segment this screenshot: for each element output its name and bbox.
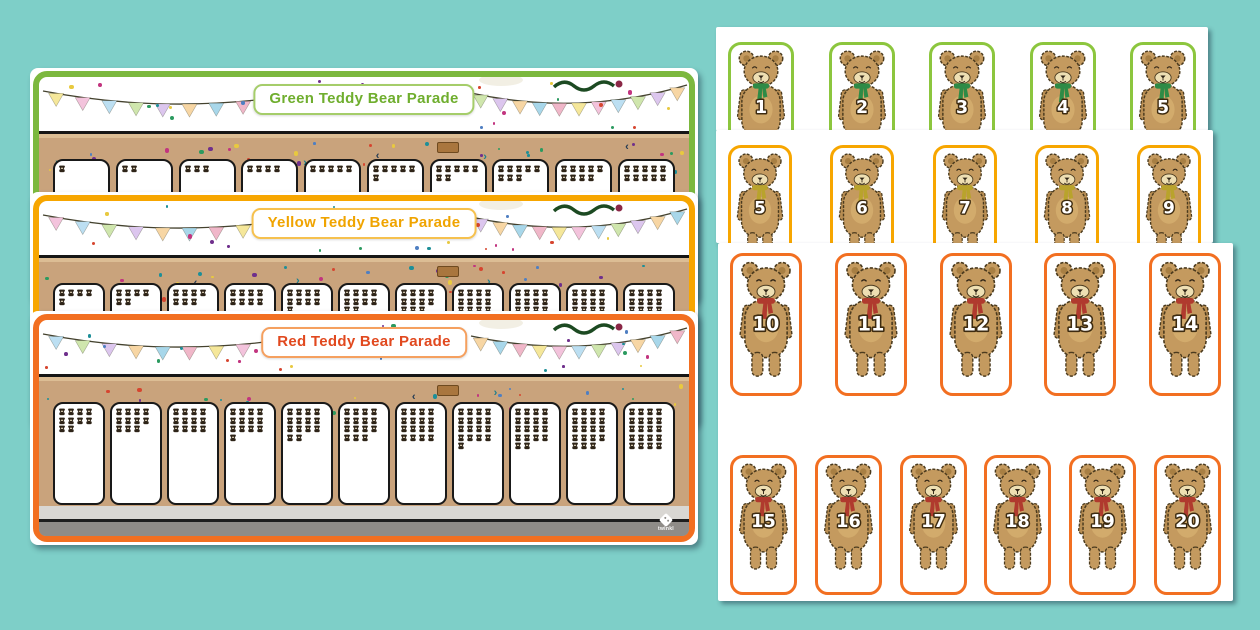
teddy-number-card-4: 4 xyxy=(1030,42,1096,131)
mini-teddy-icon xyxy=(628,434,636,442)
confetti-dot xyxy=(211,276,214,279)
confetti-dot xyxy=(502,271,505,274)
confetti-dot xyxy=(680,151,684,155)
confetti-dot xyxy=(622,343,624,345)
mini-teddy-icon xyxy=(560,165,568,173)
confetti-dot xyxy=(527,154,530,157)
teddy-bear-illustration: 2 xyxy=(833,48,891,131)
mat-title: Green Teddy Bear Parade xyxy=(269,90,458,107)
mini-teddy-icon xyxy=(199,417,207,425)
road-sign xyxy=(437,385,459,396)
mini-teddy-icon xyxy=(466,425,474,433)
mini-teddy-icon xyxy=(190,408,198,416)
mini-teddy-icon xyxy=(623,174,631,182)
mini-teddy-icon xyxy=(133,425,141,433)
mini-teddy-icon xyxy=(409,408,417,416)
mini-teddy-icon xyxy=(181,425,189,433)
teddy-number-card-16: 16 xyxy=(815,455,882,595)
mini-teddy-icon xyxy=(457,425,465,433)
confetti-dot xyxy=(228,148,231,151)
mini-teddy-icon xyxy=(172,298,180,306)
mini-teddy-icon xyxy=(58,417,66,425)
teddy-bear-illustration: 7 xyxy=(937,151,993,243)
card-row: 151617181920 xyxy=(730,455,1221,595)
bear-number: 9 xyxy=(1163,198,1175,218)
mini-teddy-icon xyxy=(514,434,522,442)
mini-teddy-icon xyxy=(523,289,531,297)
confetti-dot xyxy=(64,352,68,356)
mini-teddy-icon xyxy=(115,408,123,416)
teddy-bear-illustration: 4 xyxy=(1034,48,1092,131)
parade-mat-red: ›‹›‹›‹ Red Teddy Bear Parade twinkl xyxy=(30,311,698,545)
mini-teddy-icon xyxy=(497,174,505,182)
mini-teddy-icon xyxy=(409,425,417,433)
mini-teddy-icon xyxy=(589,417,597,425)
confetti-dot xyxy=(241,101,245,105)
teddy-bear-illustration: 18 xyxy=(988,461,1047,570)
confetti-dot xyxy=(427,247,430,250)
mini-teddy-icon xyxy=(541,417,549,425)
mini-teddy-icon xyxy=(229,408,237,416)
mini-teddy-icon xyxy=(598,289,606,297)
mini-teddy-icon xyxy=(514,417,522,425)
mini-teddy-icon xyxy=(466,408,474,416)
mini-teddy-icon xyxy=(541,434,549,442)
mini-teddy-icon xyxy=(400,289,408,297)
confetti-dot xyxy=(45,277,49,281)
mini-teddy-icon xyxy=(313,417,321,425)
mini-teddy-icon xyxy=(304,408,312,416)
mini-teddy-icon xyxy=(596,165,604,173)
mini-teddy-icon xyxy=(372,165,380,173)
confetti-dot xyxy=(88,334,91,337)
teddy-bear-illustration: 20 xyxy=(1158,461,1217,570)
mini-teddy-icon xyxy=(124,408,132,416)
mini-teddy-icon xyxy=(67,289,75,297)
mini-teddy-icon xyxy=(628,289,636,297)
mini-teddy-icon xyxy=(400,408,408,416)
mini-teddy-icon xyxy=(343,289,351,297)
mini-teddy-icon xyxy=(532,417,540,425)
mini-teddy-icon xyxy=(115,417,123,425)
mini-teddy-icon xyxy=(352,408,360,416)
mini-teddy-icon xyxy=(484,434,492,442)
bear-number: 16 xyxy=(836,512,861,532)
mini-teddy-icon xyxy=(571,442,579,450)
mini-teddy-icon xyxy=(637,434,645,442)
mini-teddy-icon xyxy=(650,174,658,182)
mini-teddy-icon xyxy=(514,442,522,450)
mini-teddy-icon xyxy=(418,417,426,425)
confetti-dot xyxy=(478,86,481,89)
bear-number: 19 xyxy=(1090,512,1115,532)
teddy-bear-illustration: 10 xyxy=(734,259,798,377)
teddy-number-card-11: 11 xyxy=(835,253,907,396)
confetti-dot xyxy=(238,360,240,362)
mini-teddy-icon xyxy=(181,289,189,297)
confetti-dot xyxy=(562,365,565,368)
mini-teddy-icon xyxy=(475,425,483,433)
mini-teddy-icon xyxy=(313,289,321,297)
mini-teddy-icon xyxy=(124,298,132,306)
mini-teddy-icon xyxy=(646,408,654,416)
confetti-dot xyxy=(625,330,629,334)
mini-teddy-icon xyxy=(238,298,246,306)
mini-teddy-icon xyxy=(598,417,606,425)
mini-teddy-icon xyxy=(409,298,417,306)
mini-teddy-icon xyxy=(523,442,531,450)
confetti-dot xyxy=(670,152,673,155)
mini-teddy-icon xyxy=(466,417,474,425)
teddy-bear-illustration: 9 xyxy=(1141,151,1197,243)
mini-teddy-icon xyxy=(67,408,75,416)
confetti-dot xyxy=(105,212,108,215)
mini-teddy-icon xyxy=(523,425,531,433)
mini-teddy-icon xyxy=(514,289,522,297)
mini-teddy-icon xyxy=(390,165,398,173)
confetti-dot xyxy=(319,277,323,281)
mini-teddy-icon xyxy=(256,289,264,297)
bear-number: 2 xyxy=(855,98,867,118)
mini-teddy-icon xyxy=(193,165,201,173)
mini-teddy-icon xyxy=(580,298,588,306)
mini-teddy-icon xyxy=(655,425,663,433)
mini-teddy-icon xyxy=(637,442,645,450)
confetti-dot xyxy=(252,273,256,277)
mini-teddy-icon xyxy=(523,434,531,442)
road-chevron: ‹ xyxy=(625,142,629,153)
mini-teddy-icon xyxy=(541,408,549,416)
counting-stand-16 xyxy=(395,402,447,505)
confetti-dot xyxy=(557,98,559,100)
confetti-dot xyxy=(226,359,229,362)
bear-number: 5 xyxy=(1157,98,1169,118)
mini-teddy-icon xyxy=(466,298,474,306)
bear-number: 20 xyxy=(1175,512,1200,532)
mini-teddy-icon xyxy=(580,442,588,450)
mini-teddy-icon xyxy=(457,434,465,442)
confetti-dot xyxy=(550,82,553,85)
mini-teddy-icon xyxy=(399,165,407,173)
mini-teddy-icon xyxy=(247,425,255,433)
mini-teddy-icon xyxy=(598,434,606,442)
teddy-bear-illustration: 13 xyxy=(1048,259,1112,377)
mini-teddy-icon xyxy=(115,298,123,306)
mini-teddy-icon xyxy=(408,165,416,173)
brand-logo: twinkl xyxy=(652,515,680,532)
mini-teddy-icon xyxy=(115,425,123,433)
mini-teddy-icon xyxy=(541,425,549,433)
mini-teddy-icon xyxy=(130,165,138,173)
teddy-number-card-1: 1 xyxy=(728,42,794,131)
mini-teddy-icon xyxy=(409,289,417,297)
confetti-dot xyxy=(473,265,475,267)
mini-teddy-icon xyxy=(58,425,66,433)
mini-teddy-icon xyxy=(304,425,312,433)
mini-teddy-icon xyxy=(589,289,597,297)
mini-teddy-icon xyxy=(295,289,303,297)
confetti-dot xyxy=(120,279,124,283)
counting-stand-14 xyxy=(281,402,333,505)
mini-teddy-icon xyxy=(238,425,246,433)
mini-teddy-icon xyxy=(418,289,426,297)
mini-teddy-icon xyxy=(318,165,326,173)
mini-teddy-icon xyxy=(313,408,321,416)
mini-teddy-icon xyxy=(256,425,264,433)
mini-teddy-icon xyxy=(345,165,353,173)
teddy-bear-illustration: 12 xyxy=(944,259,1008,377)
confetti-dot xyxy=(667,107,670,110)
mini-teddy-icon xyxy=(571,434,579,442)
mini-teddy-icon xyxy=(541,289,549,297)
mini-teddy-icon xyxy=(637,417,645,425)
mini-teddy-icon xyxy=(309,165,317,173)
mini-teddy-icon xyxy=(637,298,645,306)
mini-teddy-icon xyxy=(571,298,579,306)
mini-teddy-icon xyxy=(418,298,426,306)
mini-teddy-icon xyxy=(190,298,198,306)
mini-teddy-icon xyxy=(370,289,378,297)
mini-teddy-icon xyxy=(361,425,369,433)
mini-teddy-icon xyxy=(466,434,474,442)
mini-teddy-icon xyxy=(471,165,479,173)
mini-teddy-icon xyxy=(646,425,654,433)
mini-teddy-icon xyxy=(580,289,588,297)
mini-teddy-icon xyxy=(343,425,351,433)
card-row: 56789 xyxy=(728,145,1201,243)
mini-teddy-icon xyxy=(124,425,132,433)
mini-teddy-icon xyxy=(247,408,255,416)
mini-teddy-icon xyxy=(295,434,303,442)
confetti-dot xyxy=(165,148,169,152)
counting-stand-11 xyxy=(110,402,162,505)
counting-stand-18 xyxy=(509,402,561,505)
mini-teddy-icon xyxy=(85,408,93,416)
mini-teddy-icon xyxy=(247,298,255,306)
mini-teddy-icon xyxy=(637,408,645,416)
bear-number: 10 xyxy=(753,313,780,336)
mini-teddy-icon xyxy=(514,408,522,416)
mini-teddy-icon xyxy=(304,417,312,425)
mini-teddy-icon xyxy=(578,165,586,173)
counting-stands-row xyxy=(53,402,675,505)
mini-teddy-icon xyxy=(457,408,465,416)
confetti-dot xyxy=(567,339,570,342)
card-page-green-1-5: 12345 xyxy=(716,27,1208,131)
mini-teddy-icon xyxy=(646,442,654,450)
confetti-dot xyxy=(159,273,162,276)
teddy-bear-illustration: 5 xyxy=(1134,48,1192,131)
mini-teddy-icon xyxy=(580,408,588,416)
mini-teddy-icon xyxy=(533,165,541,173)
card-row: 12345 xyxy=(728,42,1196,131)
mini-teddy-icon xyxy=(142,408,150,416)
mat-title-banner: Green Teddy Bear Parade xyxy=(253,84,474,115)
teddy-number-card-3: 3 xyxy=(929,42,995,131)
confetti-dot xyxy=(623,351,627,355)
mini-teddy-icon xyxy=(532,289,540,297)
mini-teddy-icon xyxy=(295,425,303,433)
confetti-dot xyxy=(509,388,511,390)
road-sign xyxy=(437,142,459,153)
counting-stand-15 xyxy=(338,402,390,505)
confetti-dot xyxy=(536,266,539,269)
mini-teddy-icon xyxy=(343,408,351,416)
mini-teddy-icon xyxy=(628,408,636,416)
mat-title-banner: Yellow Teddy Bear Parade xyxy=(252,208,477,239)
teddy-bear-illustration: 5 xyxy=(732,151,788,243)
mini-teddy-icon xyxy=(313,298,321,306)
mini-teddy-icon xyxy=(637,289,645,297)
mini-teddy-icon xyxy=(515,165,523,173)
mini-teddy-icon xyxy=(264,165,272,173)
confetti-dot xyxy=(47,398,49,400)
mini-teddy-icon xyxy=(343,434,351,442)
counting-stand-10 xyxy=(53,402,105,505)
teddy-bear-illustration: 19 xyxy=(1073,461,1132,570)
confetti-dot xyxy=(284,266,287,269)
mini-teddy-icon xyxy=(506,174,514,182)
teddy-number-card-6: 6 xyxy=(830,145,894,243)
mat-title-banner: Red Teddy Bear Parade xyxy=(261,327,467,358)
confetti-dot xyxy=(646,355,650,359)
confetti-dot xyxy=(227,245,229,247)
confetti-dot xyxy=(234,144,239,149)
mini-teddy-icon xyxy=(418,425,426,433)
mini-teddy-icon xyxy=(435,165,443,173)
mat-title: Yellow Teddy Bear Parade xyxy=(268,214,461,231)
mini-teddy-icon xyxy=(336,165,344,173)
mini-teddy-icon xyxy=(181,408,189,416)
confetti-dot xyxy=(147,105,151,109)
mini-teddy-icon xyxy=(361,434,369,442)
mini-teddy-icon xyxy=(571,408,579,416)
bear-number: 7 xyxy=(959,198,971,218)
mini-teddy-icon xyxy=(256,417,264,425)
pavement-strip xyxy=(39,506,689,536)
mini-teddy-icon xyxy=(229,289,237,297)
mini-teddy-icon xyxy=(524,165,532,173)
confetti-dot xyxy=(502,111,506,115)
mini-teddy-icon xyxy=(580,425,588,433)
bear-number: 13 xyxy=(1067,313,1094,336)
bear-number: 12 xyxy=(962,313,989,336)
confetti-dot xyxy=(90,153,92,155)
mini-teddy-icon xyxy=(418,434,426,442)
mini-teddy-icon xyxy=(560,174,568,182)
mini-teddy-icon xyxy=(506,165,514,173)
confetti-dot xyxy=(632,143,635,146)
bear-number: 5 xyxy=(754,198,766,218)
bear-number: 3 xyxy=(956,98,968,118)
confetti-dot xyxy=(294,151,298,155)
mini-teddy-icon xyxy=(628,298,636,306)
mini-teddy-icon xyxy=(655,442,663,450)
mini-teddy-icon xyxy=(569,174,577,182)
bear-number: 15 xyxy=(751,512,776,532)
teddy-bear-illustration: 11 xyxy=(839,259,903,377)
mini-teddy-icon xyxy=(523,417,531,425)
teddy-bear-illustration: 6 xyxy=(834,151,890,243)
mini-teddy-icon xyxy=(623,165,631,173)
mini-teddy-icon xyxy=(304,289,312,297)
mini-teddy-icon xyxy=(475,298,483,306)
mini-teddy-icon xyxy=(409,434,417,442)
mini-teddy-icon xyxy=(295,417,303,425)
mini-teddy-icon xyxy=(361,289,369,297)
mini-teddy-icon xyxy=(172,289,180,297)
mini-teddy-icon xyxy=(370,417,378,425)
bear-number: 1 xyxy=(755,98,767,118)
mini-teddy-icon xyxy=(475,417,483,425)
mini-teddy-icon xyxy=(199,425,207,433)
mini-teddy-icon xyxy=(484,289,492,297)
mini-teddy-icon xyxy=(58,165,66,173)
mini-teddy-icon xyxy=(361,298,369,306)
confetti-dot xyxy=(69,85,73,89)
confetti-dot xyxy=(156,104,159,107)
mini-teddy-icon xyxy=(646,434,654,442)
mini-teddy-icon xyxy=(370,425,378,433)
mini-teddy-icon xyxy=(286,289,294,297)
road-chevron: › xyxy=(494,388,498,399)
mini-teddy-icon xyxy=(181,298,189,306)
mini-teddy-icon xyxy=(273,165,281,173)
confetti-dot xyxy=(247,397,251,401)
confetti-dot xyxy=(137,388,141,392)
card-page-red-10-20: 1011121314151617181920 xyxy=(718,243,1233,601)
confetti-dot xyxy=(157,359,160,362)
mini-teddy-icon xyxy=(133,417,141,425)
mini-teddy-icon xyxy=(256,298,264,306)
mini-teddy-icon xyxy=(571,417,579,425)
mini-teddy-icon xyxy=(532,298,540,306)
mini-teddy-icon xyxy=(569,165,577,173)
mini-teddy-icon xyxy=(246,165,254,173)
confetti-dot xyxy=(506,215,509,218)
teddy-number-card-13: 13 xyxy=(1044,253,1116,396)
mini-teddy-icon xyxy=(475,434,483,442)
mini-teddy-icon xyxy=(172,408,180,416)
confetti-dot xyxy=(498,148,500,150)
mini-teddy-icon xyxy=(589,408,597,416)
teddy-bear-illustration: 8 xyxy=(1039,151,1095,243)
mini-teddy-icon xyxy=(587,165,595,173)
mini-teddy-icon xyxy=(142,417,150,425)
mini-teddy-icon xyxy=(400,298,408,306)
confetti-dot xyxy=(679,384,683,388)
mini-teddy-icon xyxy=(184,165,192,173)
confetti-dot xyxy=(318,80,321,83)
mini-teddy-icon xyxy=(571,425,579,433)
mini-teddy-icon xyxy=(532,425,540,433)
mini-teddy-icon xyxy=(133,408,141,416)
teddy-number-card-9: 9 xyxy=(1137,145,1201,243)
teddy-number-card-7: 7 xyxy=(933,145,997,243)
mini-teddy-icon xyxy=(352,425,360,433)
mini-teddy-icon xyxy=(484,408,492,416)
teddy-number-card-19: 19 xyxy=(1069,455,1136,595)
mini-teddy-icon xyxy=(598,408,606,416)
confetti-dot xyxy=(540,148,544,152)
mini-teddy-icon xyxy=(327,165,335,173)
mini-teddy-icon xyxy=(628,442,636,450)
mini-teddy-icon xyxy=(247,417,255,425)
mini-teddy-icon xyxy=(286,425,294,433)
brand-logo-text: twinkl xyxy=(658,526,674,532)
mini-teddy-icon xyxy=(444,165,452,173)
mini-teddy-icon xyxy=(229,434,237,442)
